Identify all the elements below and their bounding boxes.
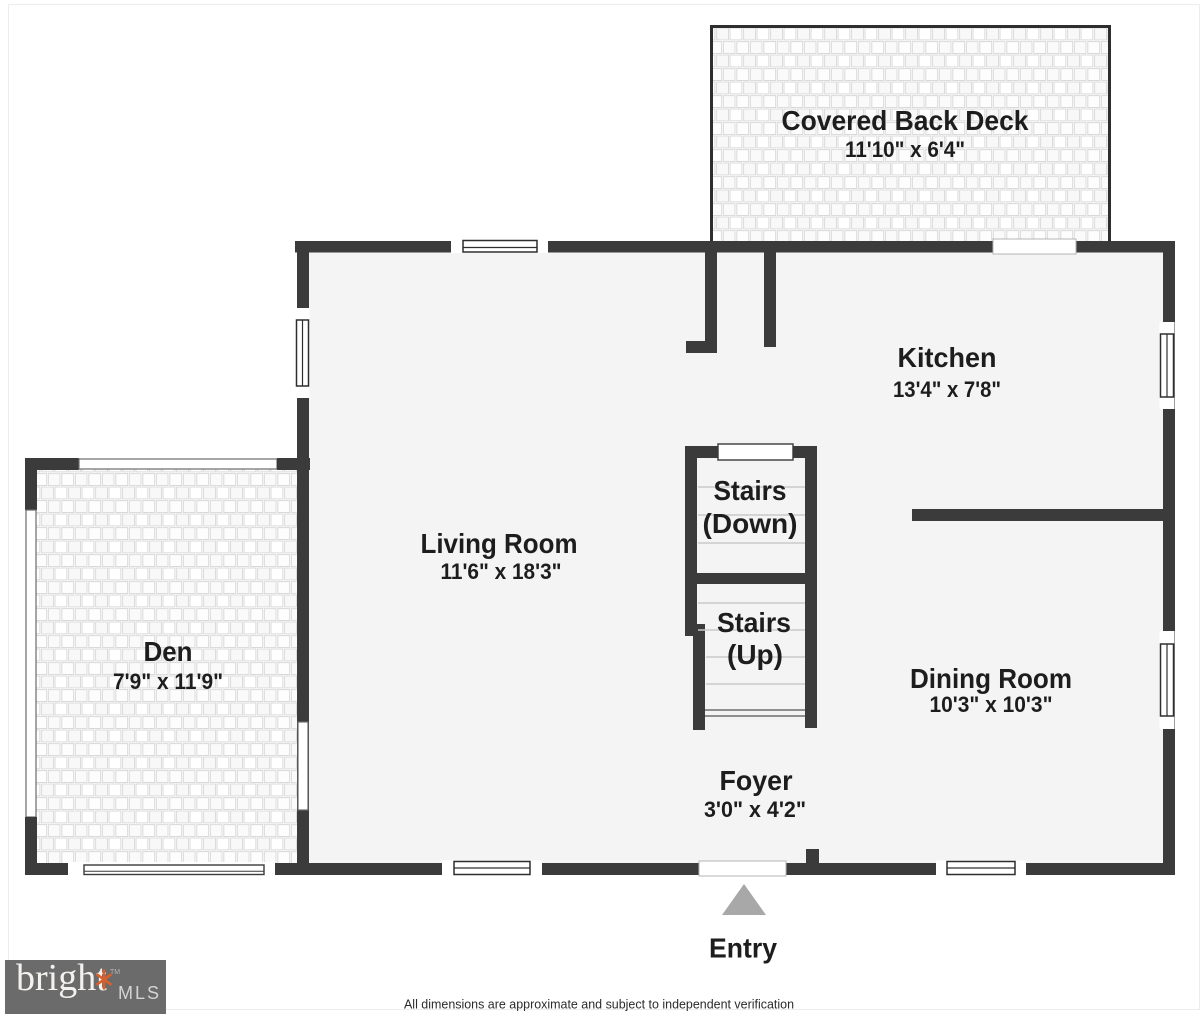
svg-text:13'4" x 7'8": 13'4" x 7'8" (893, 377, 1001, 402)
svg-text:Covered Back Deck: Covered Back Deck (782, 105, 1029, 136)
svg-text:11'10" x 6'4": 11'10" x 6'4" (845, 137, 965, 162)
svg-text:Den: Den (144, 636, 193, 667)
svg-text:Foyer: Foyer (720, 765, 793, 796)
svg-text:Living Room: Living Room (421, 528, 578, 559)
svg-text:All dimensions are approximate: All dimensions are approximate and subje… (404, 997, 794, 1012)
svg-text:Stairs: Stairs (717, 607, 791, 638)
svg-text:(Down): (Down) (703, 508, 798, 539)
svg-text:(Up): (Up) (727, 639, 783, 670)
svg-text:Stairs: Stairs (714, 475, 787, 506)
svg-text:10'3" x 10'3": 10'3" x 10'3" (930, 692, 1053, 717)
svg-text:Entry: Entry (709, 933, 777, 964)
svg-text:11'6" x 18'3": 11'6" x 18'3" (441, 559, 562, 584)
svg-text:3'0" x 4'2": 3'0" x 4'2" (704, 797, 806, 822)
svg-text:Dining Room: Dining Room (910, 663, 1072, 694)
svg-text:Kitchen: Kitchen (898, 342, 997, 373)
svg-text:7'9" x 11'9": 7'9" x 11'9" (113, 669, 223, 694)
